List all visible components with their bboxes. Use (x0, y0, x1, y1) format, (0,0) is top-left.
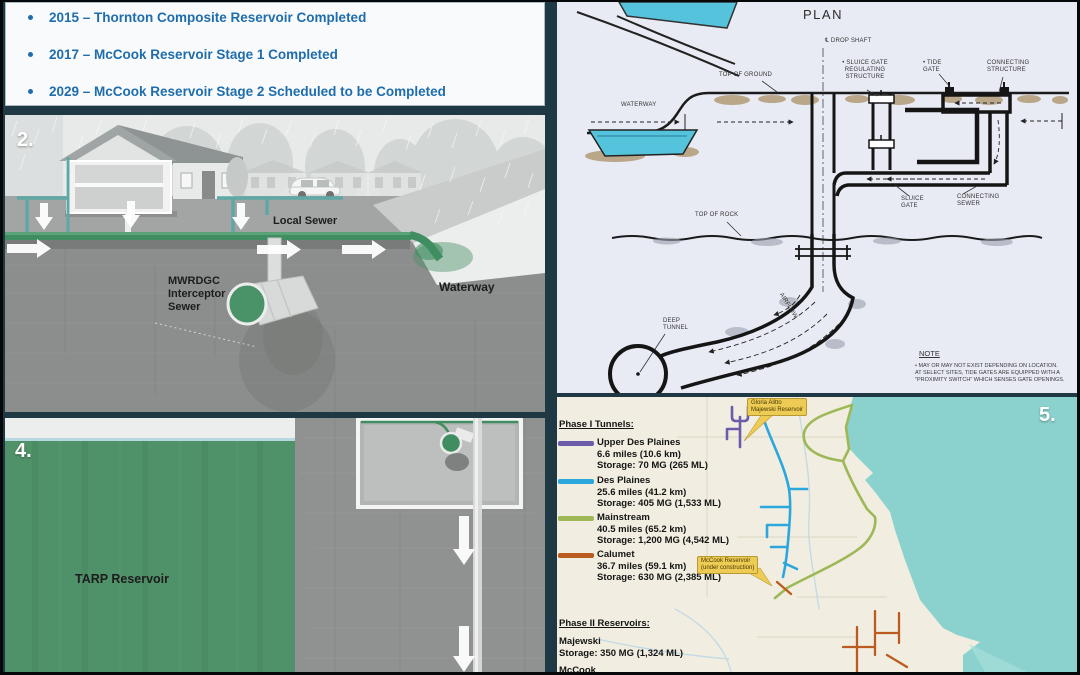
top-of-ground-label: TOP OF GROUND (719, 72, 772, 79)
tunnel-name: Mainstream (597, 512, 729, 524)
tunnel-name: Des Plaines (597, 475, 721, 487)
sluice-gate-symbol (869, 95, 894, 103)
waterway-section (589, 130, 697, 156)
surface-inset (358, 419, 521, 507)
reservoir-water (5, 441, 295, 672)
interceptor-pipe-section (441, 433, 461, 453)
timeline-item: 2029 – McCook Reservoir Stage 2 Schedule… (16, 84, 534, 99)
tunnel-length: 25.6 miles (41.2 km) (597, 487, 721, 499)
reservoir-name: McCook (559, 665, 596, 672)
phase1-tunnels-title: Phase I Tunnels: (559, 419, 634, 430)
bullet-icon (28, 15, 33, 20)
timeline-item-text: 2017 – McCook Reservoir Stage 1 Complete… (49, 47, 338, 62)
tunnel-storage: Storage: 405 MG (1,533 ML) (597, 498, 721, 510)
dropshaft-plan-panel: PLAN ℄ DROP SHAFT TOP OF GROUND WATERWAY… (557, 2, 1077, 393)
ground-surface-strip (5, 418, 295, 438)
legend-item: Des Plaines 25.6 miles (41.2 km) Storage… (597, 475, 721, 510)
majewski-reservoir-callout: Gloria Alitto Majewski Reservoir (747, 398, 807, 416)
timeline-item: 2017 – McCook Reservoir Stage 1 Complete… (16, 47, 534, 62)
slide: 2015 – Thornton Composite Reservoir Comp… (0, 0, 1080, 675)
connecting-structure-label: CONNECTING STRUCTURE (987, 60, 1029, 74)
tide-gate-label: • TIDE GATE (923, 60, 942, 74)
panel-number: 4. (15, 440, 32, 463)
bush (226, 157, 248, 197)
note-title: NOTE (919, 349, 940, 358)
interceptor-sewer-illustration (5, 115, 545, 412)
legend-swatch-des-plaines (558, 479, 594, 484)
sluice-gate-regulating-label: • SLUICE GATE REGULATING STRUCTURE (839, 60, 891, 81)
bullet-icon (28, 52, 33, 57)
legend-swatch-upper-des-plaines (558, 441, 594, 446)
tarp-reservoir-panel: 4. TARP Reservoir (5, 418, 545, 672)
tunnel-storage: Storage: 70 MG (265 ML) (597, 460, 708, 472)
mccook-reservoir-callout: McCook Reservoir (under construction) (697, 556, 758, 574)
reservoir-entry: Majewski Storage: 350 MG (1,324 ML) (559, 636, 683, 659)
tunnel-name: Upper Des Plaines (597, 437, 708, 449)
plan-title: PLAN (803, 7, 843, 22)
tunnel-length: 40.5 miles (65.2 km) (597, 524, 729, 536)
tunnel-storage: Storage: 1,200 MG (4,542 ML) (597, 535, 729, 547)
timeline-item-text: 2015 – Thornton Composite Reservoir Comp… (49, 10, 366, 25)
sluice-gate-symbol (869, 140, 894, 148)
window (181, 173, 192, 188)
reservoir-storage: Storage: 350 MG (1,324 ML) (559, 648, 683, 660)
drop-shaft-label: ℄ DROP SHAFT (825, 38, 871, 45)
legend-swatch-calumet (558, 553, 594, 558)
bullet-icon (28, 89, 33, 94)
tarp-reservoir-illustration (5, 418, 545, 672)
deep-tunnel-label: DEEP TUNNEL (663, 318, 688, 332)
timeline-item: 2015 – Thornton Composite Reservoir Comp… (16, 10, 534, 25)
waterway-label: WATERWAY (621, 102, 657, 109)
water-line (5, 438, 295, 441)
interceptor-sewer-panel: 2. Local Sewer MWRDGC Interceptor Sewer … (5, 115, 545, 412)
legend-swatch-mainstream (558, 516, 594, 521)
door (202, 171, 215, 199)
note-text: • MAY OR MAY NOT EXIST DEPENDING ON LOCA… (915, 363, 1070, 384)
reservoir-name: Majewski (559, 636, 683, 648)
legend-item: Upper Des Plaines 6.6 miles (10.6 km) St… (597, 437, 708, 472)
local-sewer-label: Local Sewer (273, 215, 337, 227)
tarp-map-panel: 5. Phase I Tunnels: Upper Des Plaines 6.… (557, 397, 1077, 672)
panel-number: 2. (17, 129, 34, 152)
reservoir-entry: McCook (559, 665, 596, 672)
waterway-label: Waterway (439, 280, 495, 294)
interceptor-label: MWRDGC Interceptor Sewer (168, 275, 225, 314)
sluice-gate-label: SLUICE GATE (901, 196, 924, 210)
top-of-rock-label: TOP OF ROCK (695, 212, 738, 219)
connecting-sewer-label: CONNECTING SEWER (957, 194, 999, 208)
timeline-item-text: 2029 – McCook Reservoir Stage 2 Schedule… (49, 84, 446, 99)
panel-number: 5. (1039, 404, 1056, 427)
legend-item: Mainstream 40.5 miles (65.2 km) Storage:… (597, 512, 729, 547)
phase2-reservoirs-title: Phase II Reservoirs: (559, 618, 650, 629)
tunnel-length: 6.6 miles (10.6 km) (597, 449, 708, 461)
timeline-panel: 2015 – Thornton Composite Reservoir Comp… (5, 2, 545, 106)
tarp-reservoir-label: TARP Reservoir (75, 572, 169, 586)
